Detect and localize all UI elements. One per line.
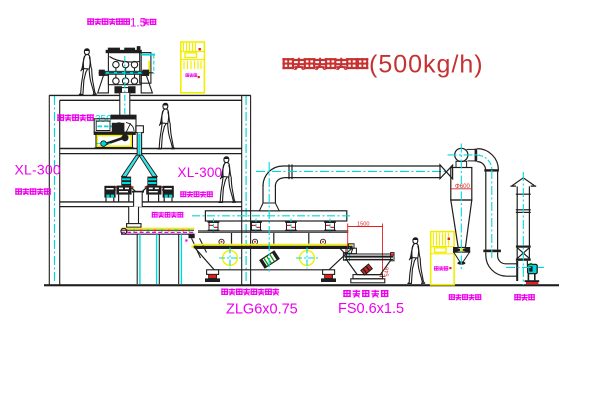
svg-text:FS0.6x1.5: FS0.6x1.5: [338, 301, 404, 317]
svg-text:XL-300: XL-300: [178, 165, 223, 180]
svg-text:Φ600: Φ600: [455, 184, 470, 190]
svg-text:XL-300: XL-300: [15, 162, 61, 178]
svg-text:ZLG6x0.75: ZLG6x0.75: [226, 302, 298, 318]
svg-text:(500kg/h): (500kg/h): [369, 51, 484, 79]
svg-text:1500: 1500: [357, 221, 369, 227]
